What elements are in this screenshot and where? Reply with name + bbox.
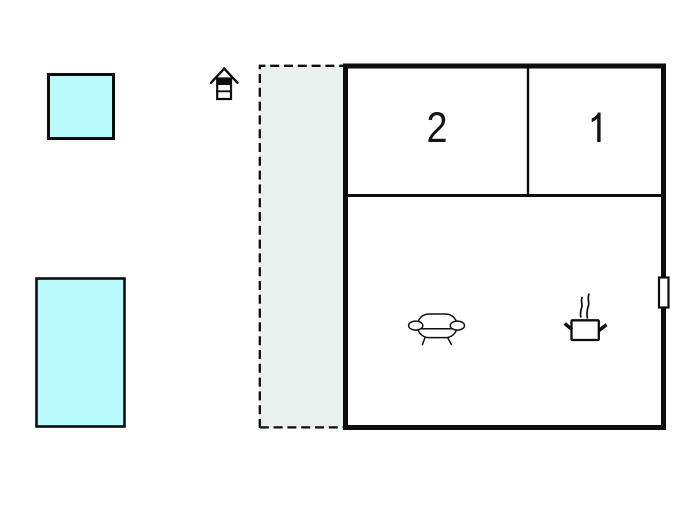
- svg-text:2: 2: [427, 104, 448, 152]
